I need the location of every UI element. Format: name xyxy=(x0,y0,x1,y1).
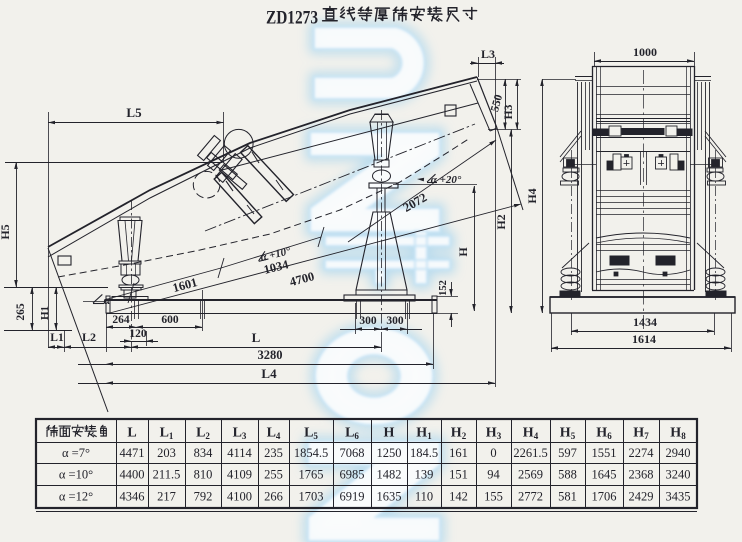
svg-text:2569: 2569 xyxy=(518,468,543,482)
svg-text:L5: L5 xyxy=(126,105,142,120)
svg-text:255: 255 xyxy=(264,468,283,482)
svg-text:2261.5: 2261.5 xyxy=(513,446,547,460)
svg-text:600: 600 xyxy=(161,314,179,326)
svg-text:1854.5: 1854.5 xyxy=(294,446,328,460)
svg-text:4114: 4114 xyxy=(227,446,252,460)
svg-text:1482: 1482 xyxy=(377,468,402,482)
svg-text:152: 152 xyxy=(438,280,449,296)
svg-text:L: L xyxy=(127,426,136,441)
svg-text:H1: H1 xyxy=(39,306,51,320)
svg-text:155: 155 xyxy=(484,490,503,504)
svg-text:L1: L1 xyxy=(50,332,64,344)
svg-text:264: 264 xyxy=(112,314,130,326)
svg-text:265: 265 xyxy=(15,303,27,321)
svg-text:203: 203 xyxy=(157,446,176,460)
svg-text:217: 217 xyxy=(157,490,176,504)
svg-text:L2: L2 xyxy=(82,330,96,344)
svg-text:184.5: 184.5 xyxy=(410,446,438,460)
svg-text:1645: 1645 xyxy=(592,468,617,482)
svg-text:ZD1273: ZD1273 xyxy=(266,8,318,29)
svg-text:4400: 4400 xyxy=(120,468,145,482)
svg-text:H4: H4 xyxy=(525,188,539,203)
svg-text:139: 139 xyxy=(415,468,434,482)
svg-text:834: 834 xyxy=(194,446,214,460)
svg-text:266: 266 xyxy=(264,490,283,504)
svg-text:L: L xyxy=(252,330,261,345)
svg-text:588: 588 xyxy=(558,468,577,482)
svg-text:L4: L4 xyxy=(261,366,277,381)
svg-text:1250: 1250 xyxy=(377,446,402,460)
svg-text:142: 142 xyxy=(449,490,468,504)
svg-text:4109: 4109 xyxy=(227,468,252,482)
svg-text:300: 300 xyxy=(359,315,377,327)
svg-text:α =10°: α =10° xyxy=(59,468,93,482)
svg-text:235: 235 xyxy=(264,446,283,460)
svg-text:1614: 1614 xyxy=(632,332,656,346)
svg-text:3435: 3435 xyxy=(666,490,691,504)
svg-text:211.5: 211.5 xyxy=(153,468,181,482)
svg-text:6985: 6985 xyxy=(340,468,365,482)
svg-text:2940: 2940 xyxy=(666,446,691,460)
svg-text:810: 810 xyxy=(194,468,213,482)
svg-text:1434: 1434 xyxy=(633,315,657,329)
svg-text:H: H xyxy=(456,247,470,257)
svg-text:581: 581 xyxy=(558,490,577,504)
svg-text:792: 792 xyxy=(194,490,213,504)
svg-text:4471: 4471 xyxy=(120,446,145,460)
svg-text:4346: 4346 xyxy=(120,490,145,504)
svg-text:H3: H3 xyxy=(503,104,515,119)
svg-text:2772: 2772 xyxy=(518,490,543,504)
svg-text:3240: 3240 xyxy=(666,468,691,482)
svg-text:1703: 1703 xyxy=(299,490,324,504)
svg-text:2429: 2429 xyxy=(629,490,654,504)
svg-text:0: 0 xyxy=(490,446,496,460)
svg-text:1551: 1551 xyxy=(592,446,617,460)
svg-text:151: 151 xyxy=(449,468,468,482)
svg-text:6919: 6919 xyxy=(340,490,365,504)
svg-text:110: 110 xyxy=(415,490,433,504)
svg-text:94: 94 xyxy=(487,468,500,482)
svg-text:1765: 1765 xyxy=(299,468,324,482)
svg-text:1635: 1635 xyxy=(377,490,402,504)
svg-text:2274: 2274 xyxy=(629,446,655,460)
svg-text:α =12°: α =12° xyxy=(59,490,93,504)
svg-text:α =7°: α =7° xyxy=(62,446,90,460)
svg-text:161: 161 xyxy=(449,446,468,460)
svg-text:4100: 4100 xyxy=(227,490,252,504)
svg-text:H5: H5 xyxy=(0,224,12,239)
svg-text:120: 120 xyxy=(129,328,147,340)
svg-text:597: 597 xyxy=(558,446,577,460)
svg-text:H2: H2 xyxy=(494,214,508,229)
svg-text:1706: 1706 xyxy=(592,490,617,504)
svg-text:3280: 3280 xyxy=(258,348,283,362)
svg-text:300: 300 xyxy=(386,315,404,327)
svg-text:1000: 1000 xyxy=(633,45,657,59)
svg-text:7068: 7068 xyxy=(340,446,365,460)
svg-text:2368: 2368 xyxy=(629,468,654,482)
svg-text:L3: L3 xyxy=(481,47,495,61)
svg-text:H: H xyxy=(384,426,395,441)
